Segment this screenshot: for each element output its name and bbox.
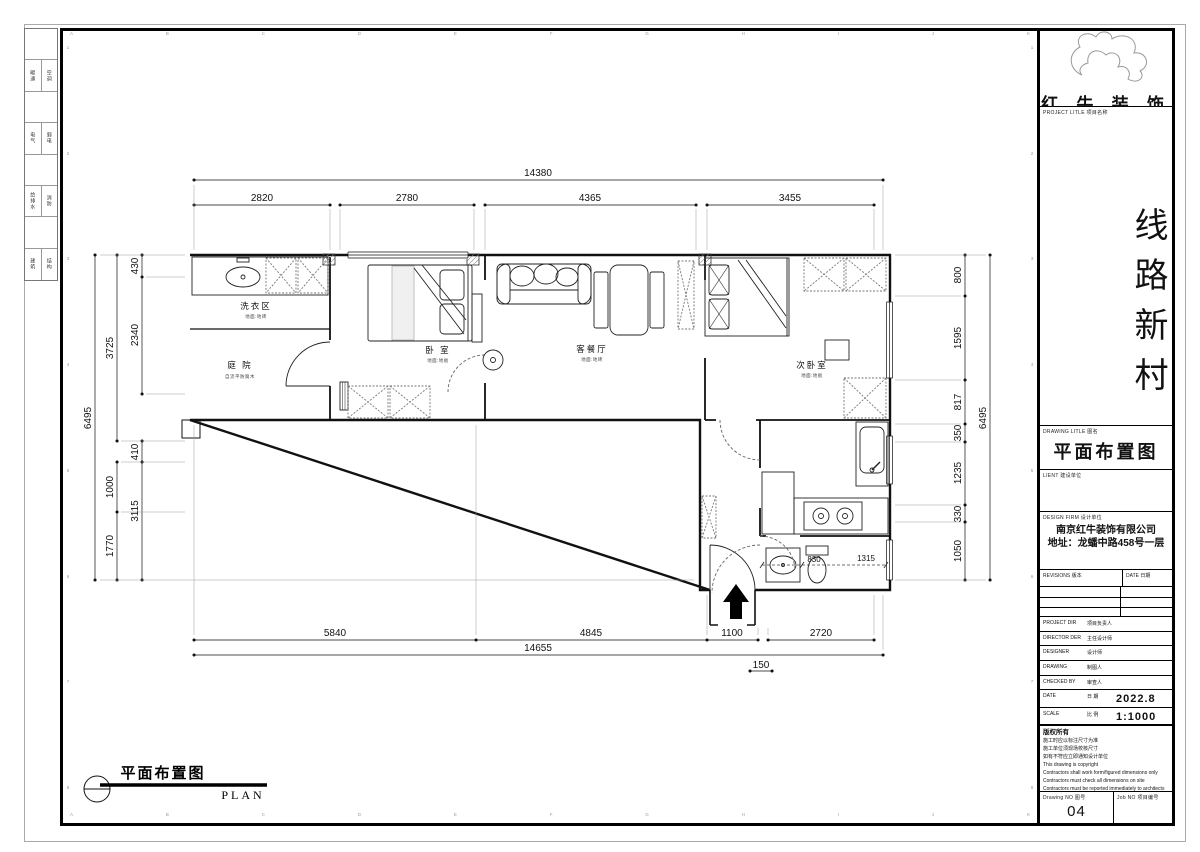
dim-interior: 830 — [807, 555, 821, 564]
interior-walls — [190, 255, 890, 536]
dim: 2720 — [810, 628, 833, 639]
fridge — [762, 472, 794, 534]
room-finish: 地面:地板 — [801, 372, 823, 379]
room-label: 洗衣区 — [240, 301, 272, 311]
brand-section: 红 牛 装 饰 — [1040, 31, 1172, 107]
row-label-en: DESIGNER — [1040, 646, 1087, 655]
scale-row: SCALE 比 例 1:1000 — [1040, 708, 1172, 726]
copyright-line: This drawing is copyright — [1040, 761, 1172, 769]
window-icon — [885, 436, 895, 484]
dim: 410 — [130, 443, 141, 460]
dim: 4365 — [579, 193, 602, 204]
dim: 2820 — [251, 193, 274, 204]
entry-arrow-icon — [723, 584, 749, 619]
sign-row-empty — [25, 217, 57, 248]
washer-icon — [266, 258, 296, 293]
date-col-label: DATE 日期 — [1122, 570, 1172, 586]
dim: 2340 — [130, 323, 141, 346]
dim: 1100 — [721, 628, 743, 639]
scale-value: 1:1000 — [1116, 711, 1156, 723]
dim: 350 — [953, 424, 964, 441]
door-swing — [720, 420, 760, 460]
sign-cell: 空调 — [42, 60, 58, 90]
dim-offset: 150 — [753, 660, 770, 671]
dim: 1000 — [105, 475, 116, 498]
revisions-label: REVISIONS 版本 — [1040, 570, 1122, 586]
sign-cell: 消防 — [42, 186, 58, 216]
dim: 330 — [953, 505, 964, 522]
row-label-en: DIRECTOR DER — [1040, 632, 1087, 641]
row-label-en: CHECKED BY — [1040, 676, 1087, 685]
drawing-no-section: Drawing NO 图号 04 Job NO 项目编号 — [1040, 792, 1172, 823]
kitchen-sink — [860, 427, 884, 473]
room-labels: 洗衣区 地面:地砖 庭 院 自流平防腐木 卧 室 地面:地板 客餐厅 地面:地砖… — [225, 301, 828, 380]
sign-cell: 给排水 — [25, 186, 42, 216]
director-row: DIRECTOR DER 主任设计师 — [1040, 632, 1172, 646]
counter — [794, 498, 888, 534]
dim-interior: 1315 — [857, 554, 875, 563]
project-title-label: PROJECT LITLE 项目名称 — [1040, 107, 1172, 116]
project-section: PROJECT LITLE 项目名称 线路新村 — [1040, 107, 1172, 426]
desk — [825, 340, 849, 360]
drawing-title-label: DRAWING LITLE 图名 — [1040, 426, 1172, 435]
date-value: 2022.8 — [1116, 693, 1156, 705]
dim: 1050 — [953, 539, 964, 562]
dim: 3455 — [779, 193, 802, 204]
bedroom-furniture — [340, 265, 503, 418]
sign-cell: 建筑 — [25, 249, 42, 280]
copyright-line: 施工单位须现场校核尺寸 — [1040, 745, 1172, 753]
dining-table — [610, 265, 648, 335]
room-label: 庭 院 — [227, 360, 252, 370]
row-label-zh: 比 例 — [1087, 708, 1098, 718]
toilet-tank — [806, 546, 828, 555]
window-icon — [885, 302, 895, 378]
revisions-header: REVISIONS 版本 DATE 日期 — [1040, 570, 1172, 587]
room-label: 客餐厅 — [576, 344, 608, 354]
job-no-label: Job NO 项目编号 — [1114, 792, 1172, 801]
laundry-fixtures — [192, 257, 328, 295]
radiator-icon — [340, 382, 348, 410]
dim-bottom-total: 14655 — [524, 643, 552, 654]
sign-row-empty — [25, 92, 57, 123]
sign-row: 给排水 消防 — [25, 186, 57, 217]
side-table — [483, 350, 503, 370]
cabinet-icon — [844, 378, 886, 418]
shoe-cabinet-icon — [702, 496, 716, 538]
copyright-section: 版权所有 施工时应以标注尺寸为准 施工单位须现场校核尺寸 如有不符应立即通知设计… — [1040, 726, 1172, 792]
row-label-en: DRAWING — [1040, 661, 1087, 670]
row-label-zh: 主任设计师 — [1087, 632, 1112, 642]
dim: 2780 — [396, 193, 419, 204]
caption-title-zh: 平面布置图 — [120, 764, 205, 782]
drawing-no-cell: Drawing NO 图号 04 — [1040, 792, 1114, 823]
pillow — [440, 270, 464, 300]
row-label-en: DATE — [1040, 690, 1087, 699]
drawing-row: DRAWING 制图人 — [1040, 661, 1172, 676]
dim-left-total: 6495 — [83, 406, 94, 429]
copyright-line: 施工时应以标注尺寸为准 — [1040, 737, 1172, 745]
sign-row-empty — [25, 29, 57, 60]
dim: 4845 — [580, 628, 603, 639]
room-finish: 自流平防腐木 — [225, 373, 255, 380]
client-section: LIENT 建设单位 — [1040, 470, 1172, 512]
row-label-zh: 制图人 — [1087, 661, 1102, 671]
row-label-zh: 设计师 — [1087, 646, 1102, 656]
row-label-zh: 日 期 — [1087, 690, 1098, 700]
project-dir-row: PROJECT DIR 项目负责人 — [1040, 617, 1172, 632]
designer-row: DESIGNER 设计师 — [1040, 646, 1172, 661]
dim: 3725 — [105, 336, 116, 359]
door-swing — [448, 355, 485, 392]
sign-cell: 弱电 — [42, 123, 58, 153]
wardrobe-icon — [348, 386, 430, 418]
entry-door — [710, 545, 755, 590]
date-row: DATE 日 期 2022.8 — [1040, 690, 1172, 708]
dim: 1595 — [953, 326, 964, 349]
bedside-cabinet — [472, 294, 482, 342]
caption-title-en: PLAN — [221, 788, 264, 802]
bed — [705, 258, 789, 336]
kitchen-fixtures — [762, 422, 888, 534]
counter — [856, 422, 888, 486]
row-label-zh: 项目负责人 — [1087, 617, 1112, 627]
sign-off-strip: 暖通 空调 电气 弱电 给排水 消防 建筑 结构 — [24, 28, 58, 281]
job-no-cell: Job NO 项目编号 — [1114, 792, 1172, 823]
row-label-en: SCALE — [1040, 708, 1087, 717]
plan-caption: 平面布置图 PLAN — [84, 764, 267, 802]
firm-address: 地址：龙蟠中路458号一层 — [1046, 537, 1166, 550]
room-label: 卧 室 — [425, 345, 450, 355]
project-name: 线路新村 — [1040, 162, 1172, 452]
room-label: 次卧室 — [796, 360, 828, 370]
sign-cell: 暖通 — [25, 60, 42, 90]
door-swing — [760, 536, 795, 571]
courtyard-door — [286, 342, 330, 386]
firm-name: 南京红牛装饰有限公司 — [1046, 524, 1166, 537]
client-label: LIENT 建设单位 — [1040, 470, 1172, 479]
sign-row: 暖通 空调 — [25, 60, 57, 91]
cabinet-icon — [678, 261, 694, 329]
sign-cell: 电气 — [25, 123, 42, 153]
drawing-no-value: 04 — [1040, 803, 1113, 820]
design-firm-label: DESIGN FIRM 设计单位 — [1040, 512, 1172, 521]
second-bedroom-furniture — [705, 258, 886, 460]
copyright-line: 版权所有 — [1040, 726, 1172, 737]
sign-cell: 结构 — [42, 249, 58, 280]
window-icon — [348, 251, 468, 259]
copyright-line: Contractors shall work form/figured dime… — [1040, 769, 1172, 777]
drawing-title: 平面布置图 — [1040, 438, 1172, 464]
floor-plan-drawing: 洗衣区 地面:地砖 庭 院 自流平防腐木 卧 室 地面:地板 客餐厅 地面:地砖… — [60, 28, 1035, 823]
drawing-title-section: DRAWING LITLE 图名 平面布置图 — [1040, 426, 1172, 470]
copyright-line: 如有不符应立即通知设计单位 — [1040, 753, 1172, 761]
exterior-walls — [182, 255, 890, 625]
drawing-no-label: Drawing NO 图号 — [1040, 792, 1113, 801]
window-symbols — [348, 251, 895, 580]
dining-chair — [650, 272, 664, 328]
window-icon — [885, 540, 895, 580]
sign-row-empty — [25, 155, 57, 186]
dim: 800 — [953, 266, 964, 283]
room-finish: 地面:地板 — [427, 357, 449, 364]
dim: 1235 — [953, 461, 964, 484]
dining-chair — [594, 272, 608, 328]
room-finish: 地面:地砖 — [581, 356, 603, 363]
dim-right-total: 6495 — [978, 406, 989, 429]
dim: 430 — [130, 257, 141, 274]
sign-row: 建筑 结构 — [25, 249, 57, 280]
copyright-line: Contractors must check all dimensions on… — [1040, 777, 1172, 785]
sign-row: 电气 弱电 — [25, 123, 57, 154]
design-firm-section: DESIGN FIRM 设计单位 南京红牛装饰有限公司 地址：龙蟠中路458号一… — [1040, 512, 1172, 570]
room-finish: 地面:地砖 — [245, 313, 267, 320]
revisions-rows — [1040, 587, 1172, 617]
checked-by-row: CHECKED BY 审查人 — [1040, 676, 1172, 690]
brand-logo — [1040, 31, 1172, 83]
row-label-zh: 审查人 — [1087, 676, 1102, 686]
living-dining-furniture — [497, 261, 694, 335]
dim: 5840 — [324, 628, 347, 639]
row-label-en: PROJECT DIR — [1040, 617, 1087, 626]
wardrobe-icon — [804, 258, 886, 291]
dim: 817 — [953, 393, 964, 410]
floor-plan-sheet: { "sign_strip": { "rows": [ {"left": "暖通… — [0, 0, 1200, 852]
dim-top-total: 14380 — [524, 168, 552, 179]
dim: 3115 — [130, 500, 141, 522]
dim: 1770 — [105, 534, 116, 557]
